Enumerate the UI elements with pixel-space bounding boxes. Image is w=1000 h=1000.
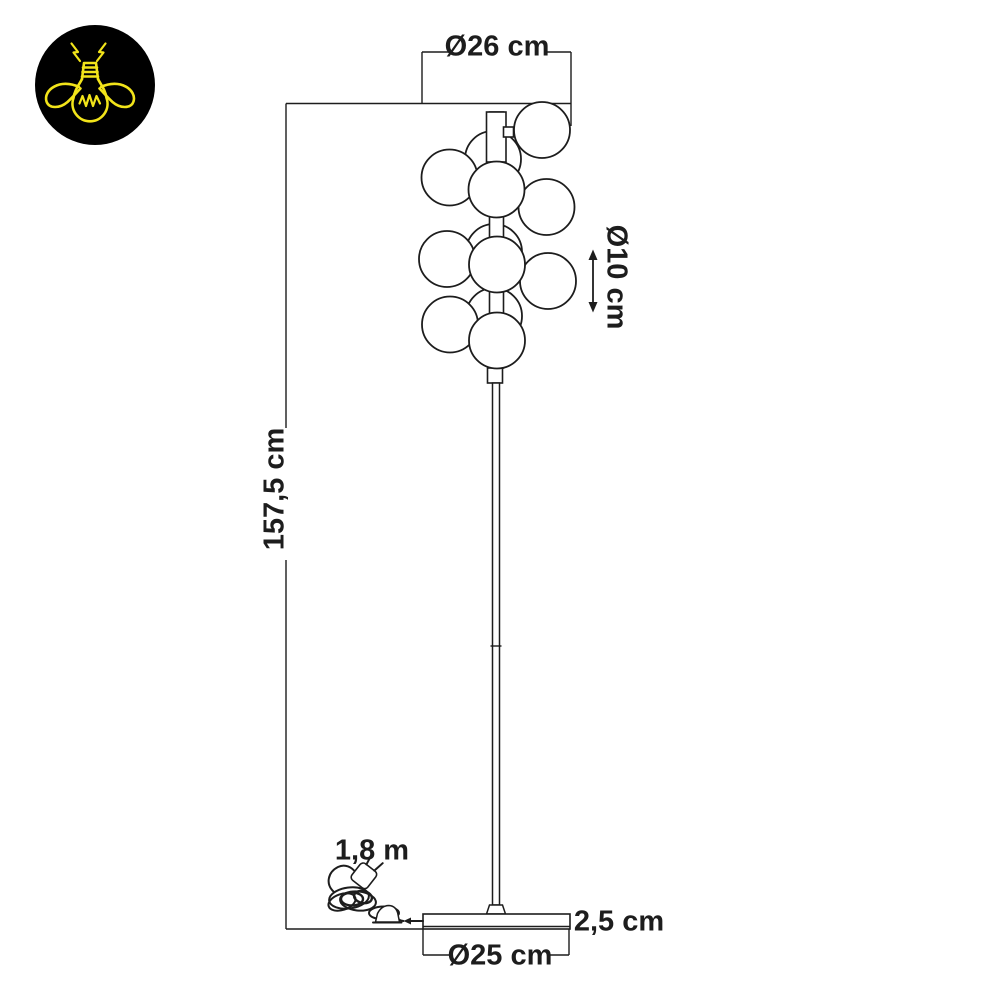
glass-sphere-front bbox=[469, 162, 525, 218]
stem-bottom-cap bbox=[488, 368, 503, 383]
stem-stub bbox=[504, 127, 514, 137]
glass-sphere-right bbox=[514, 102, 570, 158]
glass-sphere-front bbox=[469, 313, 525, 369]
label-base-height: 2,5 cm bbox=[574, 906, 664, 939]
arrow-head-down-icon bbox=[589, 302, 598, 313]
lamp-pole bbox=[487, 383, 506, 914]
bulb-diameter-arrow bbox=[589, 250, 598, 313]
logo-circle bbox=[35, 25, 155, 145]
label-cable-length: 1,8 m bbox=[335, 835, 409, 868]
label-head-diameter: Ø26 cm bbox=[445, 31, 550, 64]
glass-sphere-left bbox=[419, 231, 475, 287]
cord-connector bbox=[404, 918, 412, 925]
arrow-head-up-icon bbox=[589, 250, 598, 261]
glass-sphere-right bbox=[520, 253, 576, 309]
label-base-diameter: Ø25 cm bbox=[448, 940, 553, 973]
pole-flare bbox=[487, 905, 506, 914]
cord-coil bbox=[326, 885, 377, 914]
brand-logo bbox=[35, 25, 155, 145]
product-dimension-diagram: Ø26 cm Ø10 cm 157,5 cm 1,8 m 2,5 cm Ø25 … bbox=[0, 0, 1000, 1000]
pole-shaft bbox=[493, 383, 500, 905]
lamp-base bbox=[423, 914, 570, 929]
lamp-drawing bbox=[326, 102, 576, 929]
foot-switch bbox=[376, 906, 400, 923]
glass-sphere-front bbox=[469, 237, 525, 293]
label-bulb-diameter: Ø10 cm bbox=[600, 225, 633, 330]
label-total-height: 157,5 cm bbox=[259, 428, 292, 551]
diagram-line-art bbox=[0, 0, 1000, 1000]
glass-sphere-right bbox=[519, 179, 575, 235]
